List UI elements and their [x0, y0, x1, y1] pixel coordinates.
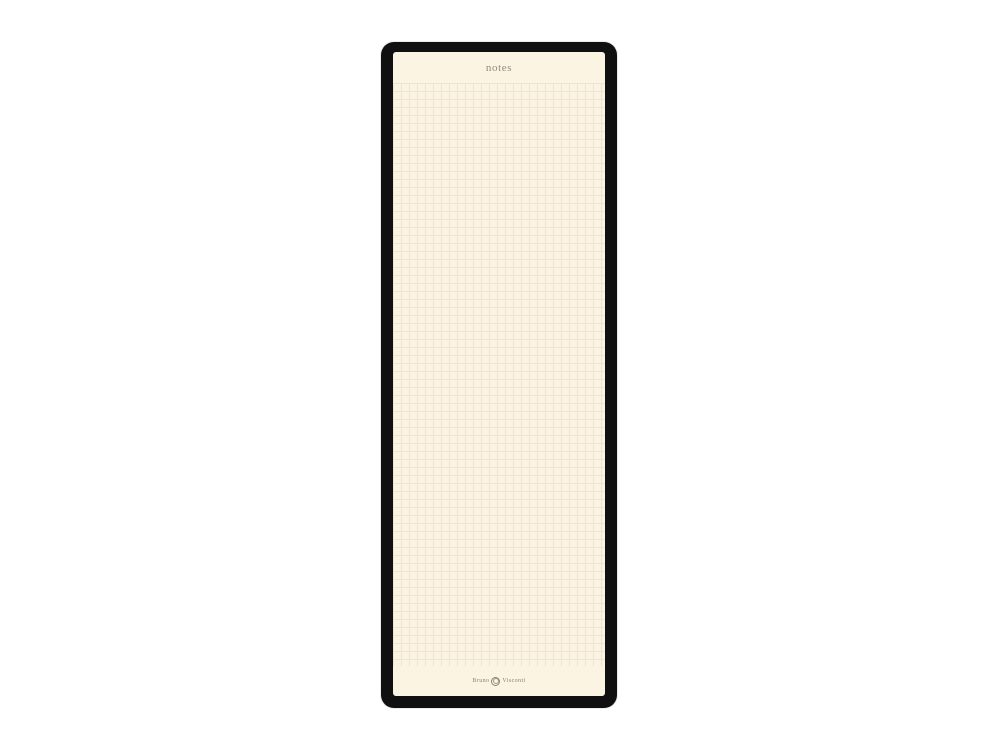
notepad-frame: notes Bruno Visconti [381, 42, 617, 708]
brand-logo: Bruno Visconti [472, 677, 525, 686]
grid-writing-area[interactable] [393, 83, 605, 666]
brand-name-right: Visconti [502, 678, 525, 684]
circular-crest-icon [491, 677, 500, 686]
brand-name-left: Bruno [472, 678, 489, 684]
page-header: notes [393, 52, 605, 83]
notes-page: notes Bruno Visconti [393, 52, 605, 696]
notes-title: notes [486, 62, 512, 74]
page-footer: Bruno Visconti [393, 666, 605, 696]
